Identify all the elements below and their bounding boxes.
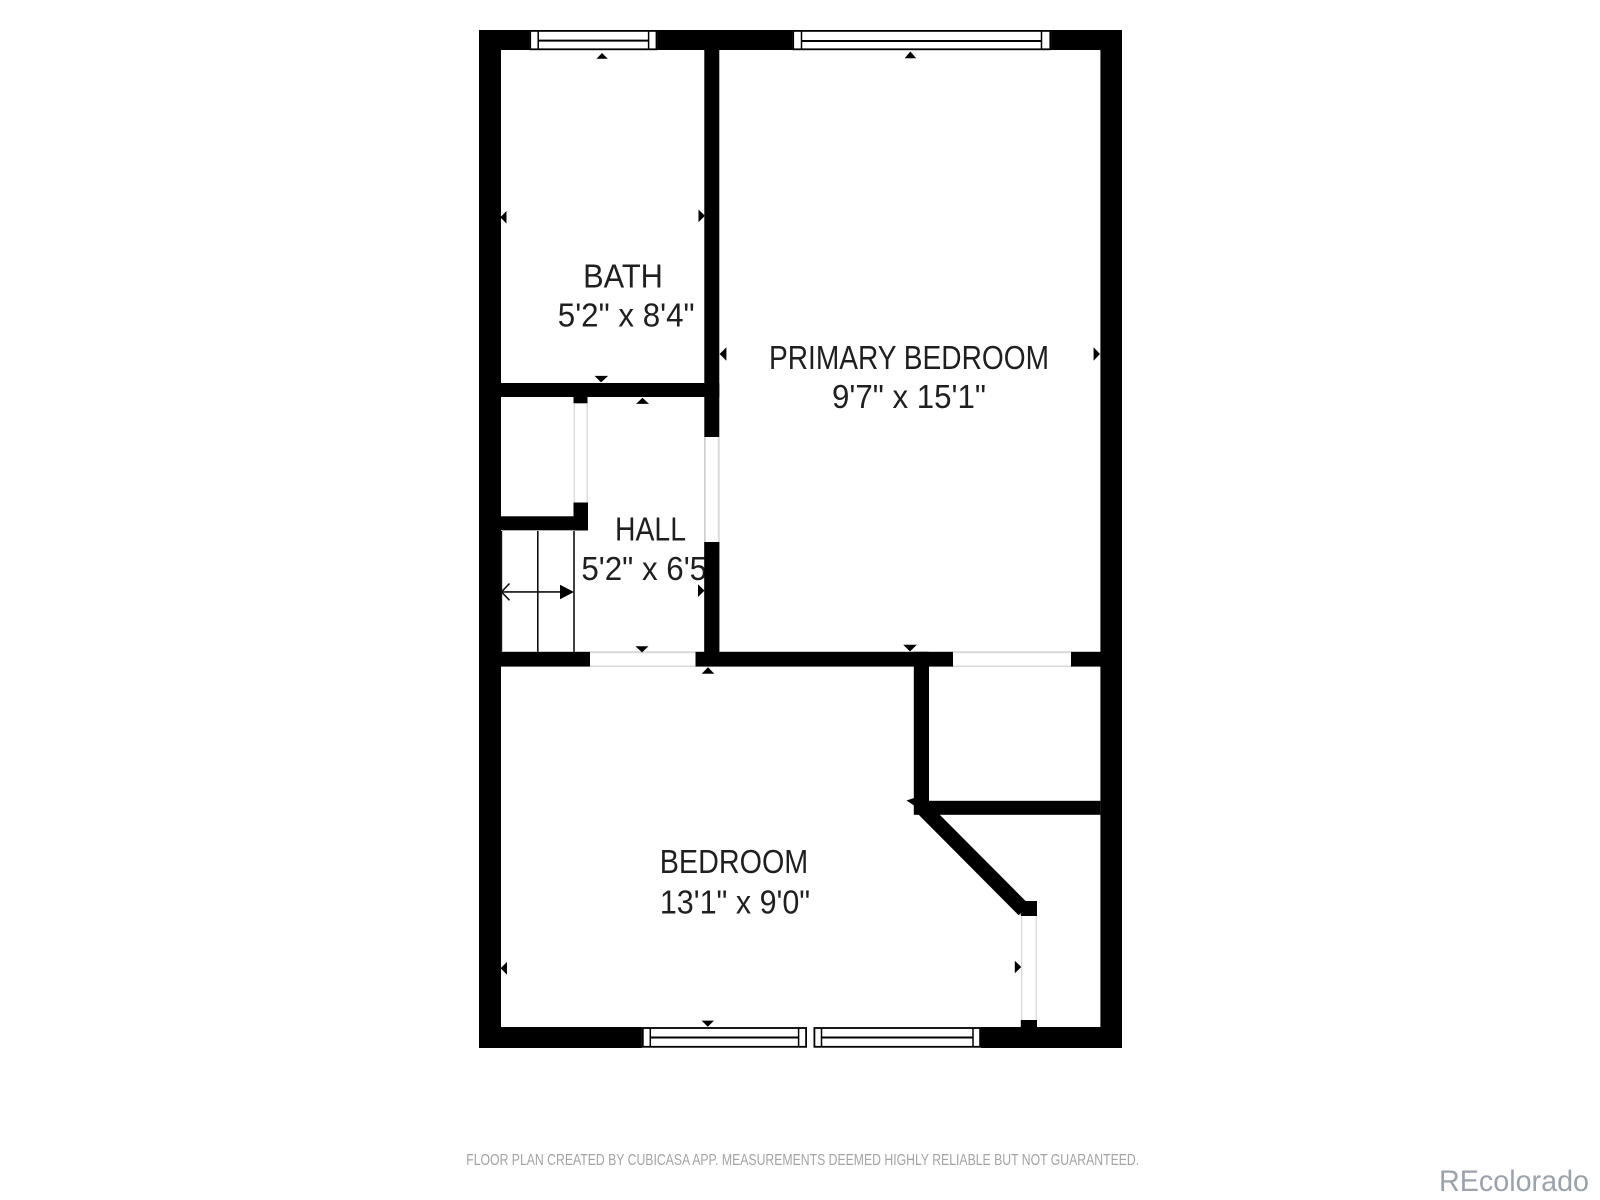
svg-text:5'2" x 6'5": 5'2" x 6'5" [581, 550, 718, 587]
svg-text:BEDROOM: BEDROOM [660, 843, 809, 880]
svg-text:5'2" x 8'4": 5'2" x 8'4" [558, 297, 695, 334]
svg-text:9'7" x 15'1": 9'7" x 15'1" [832, 378, 986, 415]
svg-text:PRIMARY BEDROOM: PRIMARY BEDROOM [769, 339, 1049, 376]
svg-text:13'1" x 9'0": 13'1" x 9'0" [660, 883, 810, 920]
svg-text:HALL: HALL [615, 511, 686, 548]
svg-text:REcolorado: REcolorado [1439, 1165, 1589, 1198]
svg-text:FLOOR PLAN CREATED BY CUBICASA: FLOOR PLAN CREATED BY CUBICASA APP. MEAS… [466, 1152, 1139, 1169]
svg-text:BATH: BATH [583, 257, 663, 294]
